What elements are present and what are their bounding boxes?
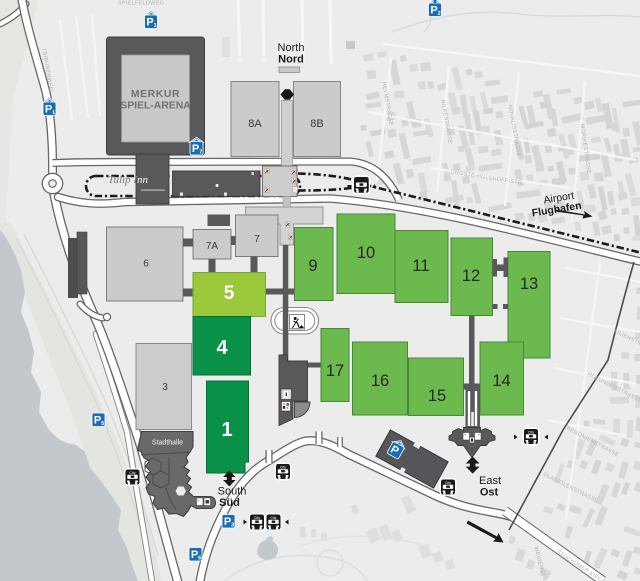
svg-text:City: City <box>254 516 260 520</box>
svg-text:1: 1 <box>154 23 157 29</box>
svg-text:6: 6 <box>198 556 201 562</box>
svg-text:8B: 8B <box>310 118 323 130</box>
svg-text:City: City <box>270 516 276 520</box>
svg-text:17: 17 <box>326 362 344 380</box>
svg-text:4: 4 <box>216 337 228 359</box>
svg-text:3: 3 <box>162 382 168 393</box>
svg-text:8A: 8A <box>248 118 262 130</box>
svg-text:14: 14 <box>492 372 510 390</box>
svg-text:1: 1 <box>221 419 232 441</box>
svg-text:Ost: Ost <box>480 487 499 499</box>
svg-text:Stadthalle: Stadthalle <box>152 440 183 447</box>
svg-text:7: 7 <box>199 150 202 156</box>
svg-text:3: 3 <box>231 523 234 529</box>
svg-text:City: City <box>445 481 451 485</box>
svg-text:City: City <box>528 431 534 435</box>
svg-text:South: South <box>218 486 247 498</box>
svg-text:5: 5 <box>224 283 235 304</box>
svg-text:2: 2 <box>438 11 441 17</box>
svg-text:9: 9 <box>308 257 317 275</box>
svg-text:15: 15 <box>428 387 446 405</box>
svg-text:East: East <box>479 475 501 487</box>
svg-text:6: 6 <box>143 259 149 270</box>
svg-text:SPIELFELDWEG: SPIELFELDWEG <box>118 1 164 7</box>
svg-text:7A: 7A <box>206 241 219 252</box>
svg-text:7: 7 <box>254 234 260 245</box>
svg-text:12: 12 <box>462 267 480 285</box>
svg-text:11: 11 <box>412 257 429 275</box>
svg-text:City: City <box>280 466 286 470</box>
svg-text:MERKUR: MERKUR <box>131 89 180 100</box>
svg-text:Nord: Nord <box>278 54 304 66</box>
svg-text:5: 5 <box>101 421 104 427</box>
svg-text:SPIEL-ARENA: SPIEL-ARENA <box>120 101 191 112</box>
svg-text:10: 10 <box>357 244 375 262</box>
svg-text:City: City <box>129 471 135 475</box>
svg-text:13: 13 <box>520 275 538 293</box>
svg-text:Süd: Süd <box>219 497 240 509</box>
svg-text:North: North <box>278 42 305 54</box>
svg-text:16: 16 <box>371 372 389 390</box>
svg-text:1: 1 <box>52 110 55 116</box>
